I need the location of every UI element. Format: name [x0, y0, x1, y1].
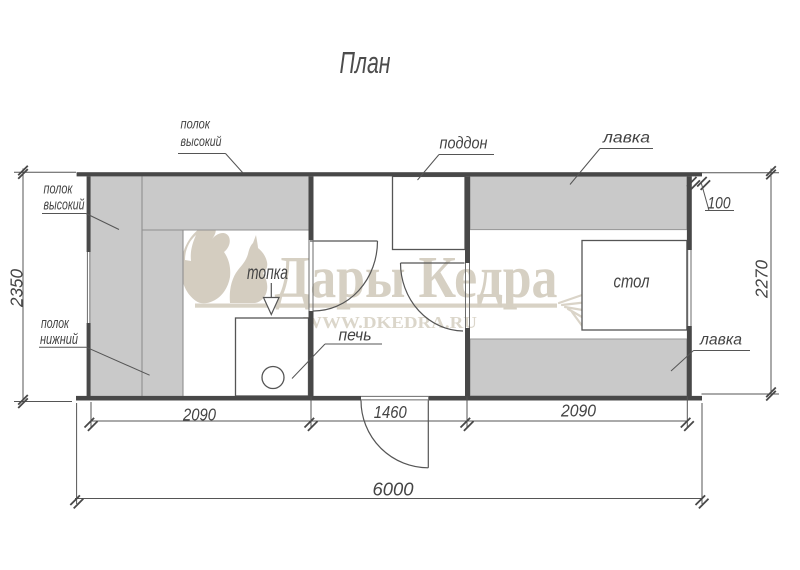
svg-text:100: 100 [708, 194, 731, 213]
svg-text:печь: печь [339, 326, 372, 345]
svg-text:полок: полок [41, 315, 70, 332]
svg-text:лавка: лавка [699, 332, 742, 349]
svg-text:полок: полок [181, 116, 212, 132]
svg-text:1460: 1460 [374, 402, 407, 422]
svg-text:План: План [340, 45, 391, 80]
svg-text:нижний: нижний [40, 331, 78, 348]
svg-text:2090: 2090 [182, 405, 216, 425]
svg-text:лавка: лавка [602, 130, 651, 147]
svg-text:полок: полок [44, 181, 74, 198]
svg-text:высокий: высокий [44, 197, 85, 214]
svg-text:топка: топка [247, 263, 288, 284]
svg-text:Дары Кедра: Дары Кедра [275, 244, 558, 310]
svg-text:2090: 2090 [560, 401, 596, 421]
svg-text:стол: стол [614, 272, 650, 292]
svg-text:2350: 2350 [7, 269, 27, 308]
svg-text:высокий: высокий [181, 133, 222, 149]
svg-text:поддон: поддон [440, 134, 489, 153]
svg-text:2270: 2270 [752, 260, 772, 299]
svg-text:6000: 6000 [373, 479, 415, 500]
